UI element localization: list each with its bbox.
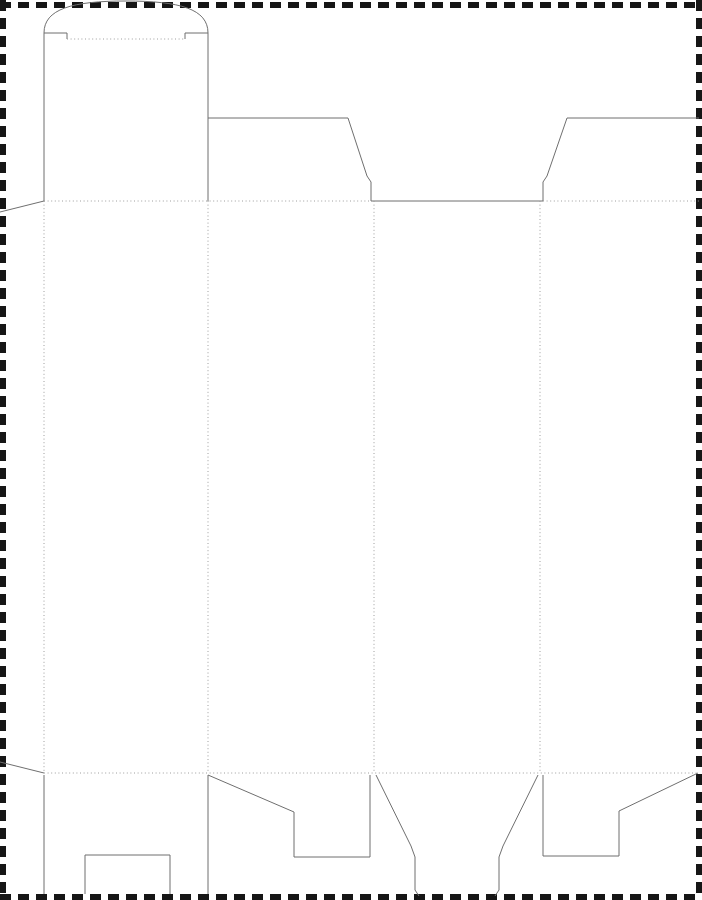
bottom-flap-1-notch — [85, 855, 170, 894]
glue-flap-top-edge — [0, 201, 44, 212]
bottom-flap-2-outline — [208, 775, 370, 857]
tuck-shoulder-right — [185, 33, 208, 39]
tuck-shoulder-left — [44, 33, 67, 39]
dieline-svg — [0, 0, 702, 900]
bottom-flap-4-outline — [543, 773, 698, 856]
dieline-page — [0, 0, 702, 900]
top-flap-4-outline — [543, 118, 699, 201]
bottom-flap-3-left-edge — [376, 775, 419, 896]
top-flap-2-outline — [208, 118, 371, 201]
bottom-flap-3-right-edge — [495, 775, 538, 896]
glue-flap-bottom-edge — [0, 762, 44, 773]
